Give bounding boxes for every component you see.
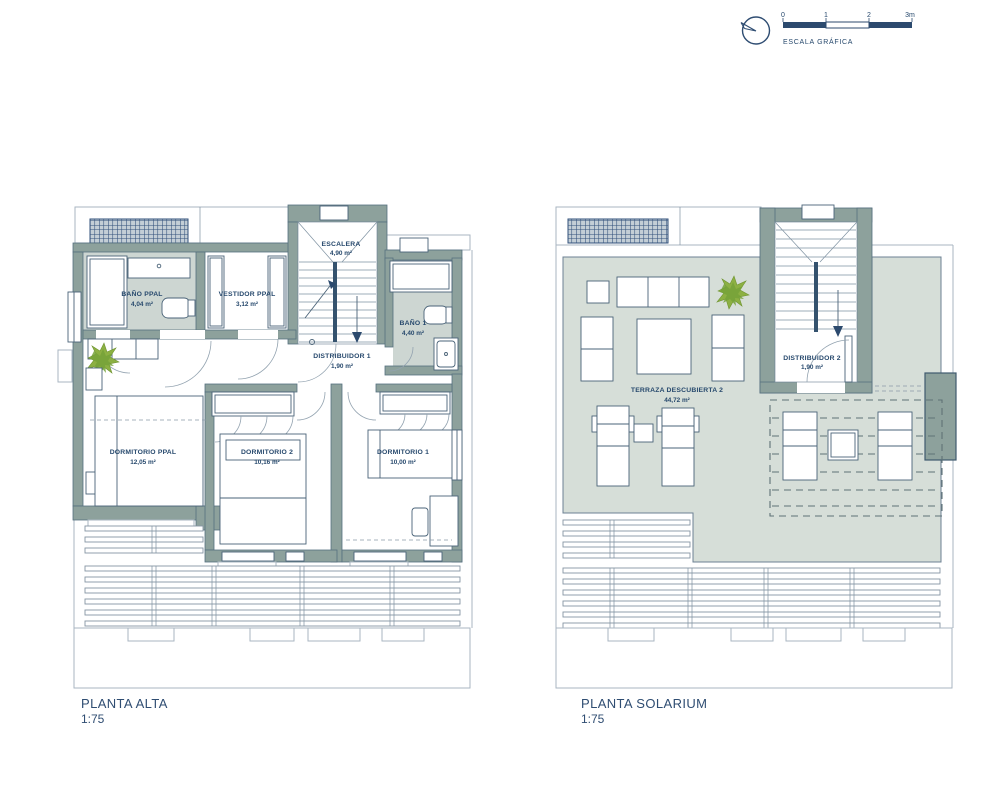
side-table-icon (587, 281, 609, 303)
plan-title: PLANTA ALTA (81, 696, 168, 711)
roof-vent (400, 238, 428, 252)
table-icon (637, 319, 691, 374)
door-leaf (845, 336, 852, 382)
chimney-block (925, 373, 956, 460)
room-label: VESTIDOR PPAL (219, 291, 276, 298)
skylight-grille-icon (568, 219, 668, 243)
toilet-icon (162, 298, 190, 318)
table-icon (828, 430, 858, 460)
room-area: 1,90 m² (331, 363, 353, 370)
plan-drawing: 0 1 2 3m ESCALA GRÁFICA (0, 0, 988, 800)
roof-vent (320, 206, 348, 220)
room-area: 1,90 m² (801, 364, 823, 371)
room-area: 4,90 m² (330, 250, 352, 257)
staircase-icon: ESCALERA 4,90 m² (298, 206, 377, 345)
plan-solarium: DISTRIBUIDOR 2 1,90 m² TERRAZA DESC (556, 205, 956, 726)
scale-bar: 0 1 2 3m ESCALA GRÁFICA (781, 12, 915, 46)
wardrobe-icon (212, 392, 294, 416)
scale-tick: 1 (824, 12, 828, 19)
desk-icon (430, 496, 458, 546)
room-label: DORMITORIO PPAL (110, 449, 177, 456)
sofa-icon (617, 277, 709, 307)
room-area: 4,40 m² (402, 330, 424, 337)
window-sill (58, 350, 72, 382)
chair-icon (412, 508, 428, 536)
window-icon (68, 292, 81, 342)
bathtub-icon (390, 261, 452, 292)
window-icon (222, 552, 274, 561)
nightstand-icon (86, 368, 102, 390)
scale-tick: 0 (781, 12, 785, 19)
floor-plan-sheet: 0 1 2 3m ESCALA GRÁFICA (0, 0, 988, 800)
sun-lounger-icon (662, 408, 694, 486)
window-icon (286, 552, 304, 561)
room-area: 44,72 m² (664, 397, 690, 404)
room-label: BAÑO 1 (400, 318, 427, 327)
dormitorio-2: DORMITORIO 2 10,16 m² (212, 392, 306, 544)
room-area: 12,05 m² (130, 459, 156, 466)
stair-tower: DISTRIBUIDOR 2 1,90 m² (760, 205, 872, 393)
room-label: DISTRIBUIDOR 1 (313, 353, 371, 360)
room-area: 3,12 m² (236, 301, 258, 308)
plan-scale: 1:75 (81, 712, 105, 726)
window-icon (424, 552, 442, 561)
scale-graphic: 0 1 2 3m ESCALA GRÁFICA (741, 12, 915, 46)
room-area: 4,04 m² (131, 301, 153, 308)
vestidor: VESTIDOR PPAL 3,12 m² (208, 256, 286, 379)
room-label: TERRAZA DESCUBIERTA 2 (631, 387, 723, 394)
window-icon (354, 552, 406, 561)
dormitorio-1: DORMITORIO 1 10,00 m² (346, 392, 462, 546)
plan-title: PLANTA SOLARIUM (581, 696, 707, 711)
room-area: 10,00 m² (390, 459, 416, 466)
scale-tick: 2 (867, 12, 871, 19)
roof-vent (802, 205, 834, 219)
room-label: BAÑO PPAL (121, 289, 162, 298)
side-table-icon (634, 424, 653, 442)
skylight-grille-icon (90, 219, 188, 243)
scale-tick: 3m (905, 12, 915, 19)
scale-caption: ESCALA GRÁFICA (783, 37, 853, 46)
room-area: 10,16 m² (254, 459, 280, 466)
room-label: DISTRIBUIDOR 2 (783, 355, 841, 362)
room-label: ESCALERA (322, 241, 361, 248)
room-label: DORMITORIO 1 (377, 449, 429, 456)
north-needle-icon (741, 23, 756, 32)
room-label: DORMITORIO 2 (241, 449, 293, 456)
toilet-icon (424, 306, 448, 324)
plan-scale: 1:75 (581, 712, 605, 726)
plan-alta: ESCALERA 4,90 m² BAÑO PPAL 4,04 m² VESTI… (58, 205, 472, 726)
